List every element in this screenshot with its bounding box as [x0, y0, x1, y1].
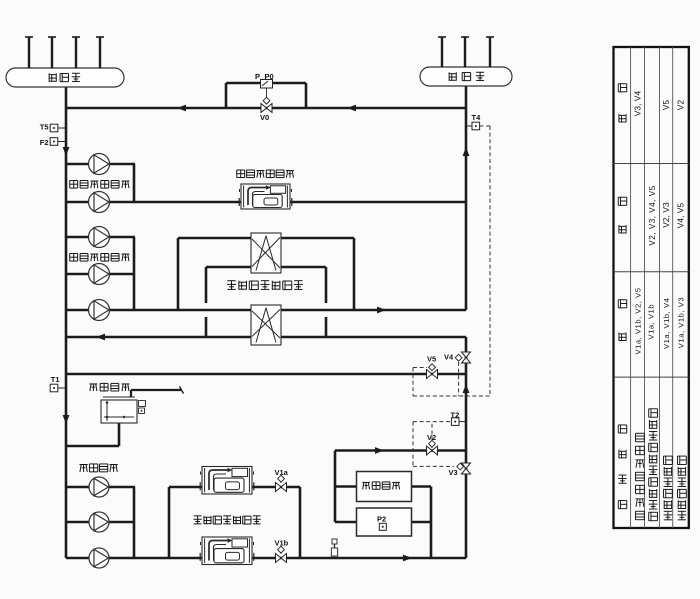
svg-text:V0: V0 — [260, 113, 269, 122]
svg-text:T2: T2 — [451, 411, 460, 420]
svg-text:V5: V5 — [427, 355, 436, 364]
svg-text:V2: V2 — [427, 433, 436, 442]
svg-text:V1b: V1b — [275, 539, 289, 548]
svg-text:V1a: V1a — [275, 468, 289, 477]
svg-text:V3: V3 — [449, 468, 458, 477]
svg-text:V2: V2 — [676, 100, 686, 111]
svg-text:P0: P0 — [265, 72, 274, 81]
svg-text:V2, V3, V4, V5: V2, V3, V4, V5 — [648, 185, 657, 245]
svg-text:V1a, V1b: V1a, V1b — [646, 304, 655, 340]
svg-text:V4, V5: V4, V5 — [676, 202, 686, 228]
svg-text:V3, V4: V3, V4 — [632, 90, 642, 116]
svg-text:V4: V4 — [444, 353, 454, 362]
svg-text:P2: P2 — [377, 515, 386, 524]
svg-text:V2, V3: V2, V3 — [661, 202, 671, 228]
svg-text:V1a, V1b, V2, V5: V1a, V1b, V2, V5 — [633, 287, 642, 354]
svg-text:V1a, V1b, V3: V1a, V1b, V3 — [677, 297, 686, 348]
svg-text:V1a, V1b, V4: V1a, V1b, V4 — [662, 298, 671, 349]
svg-text:F2: F2 — [40, 138, 49, 147]
svg-text:T1: T1 — [51, 375, 60, 384]
svg-text:T4: T4 — [472, 113, 482, 122]
svg-text:P: P — [255, 72, 260, 81]
svg-text:T5: T5 — [40, 123, 49, 132]
svg-text:V5: V5 — [661, 100, 671, 111]
